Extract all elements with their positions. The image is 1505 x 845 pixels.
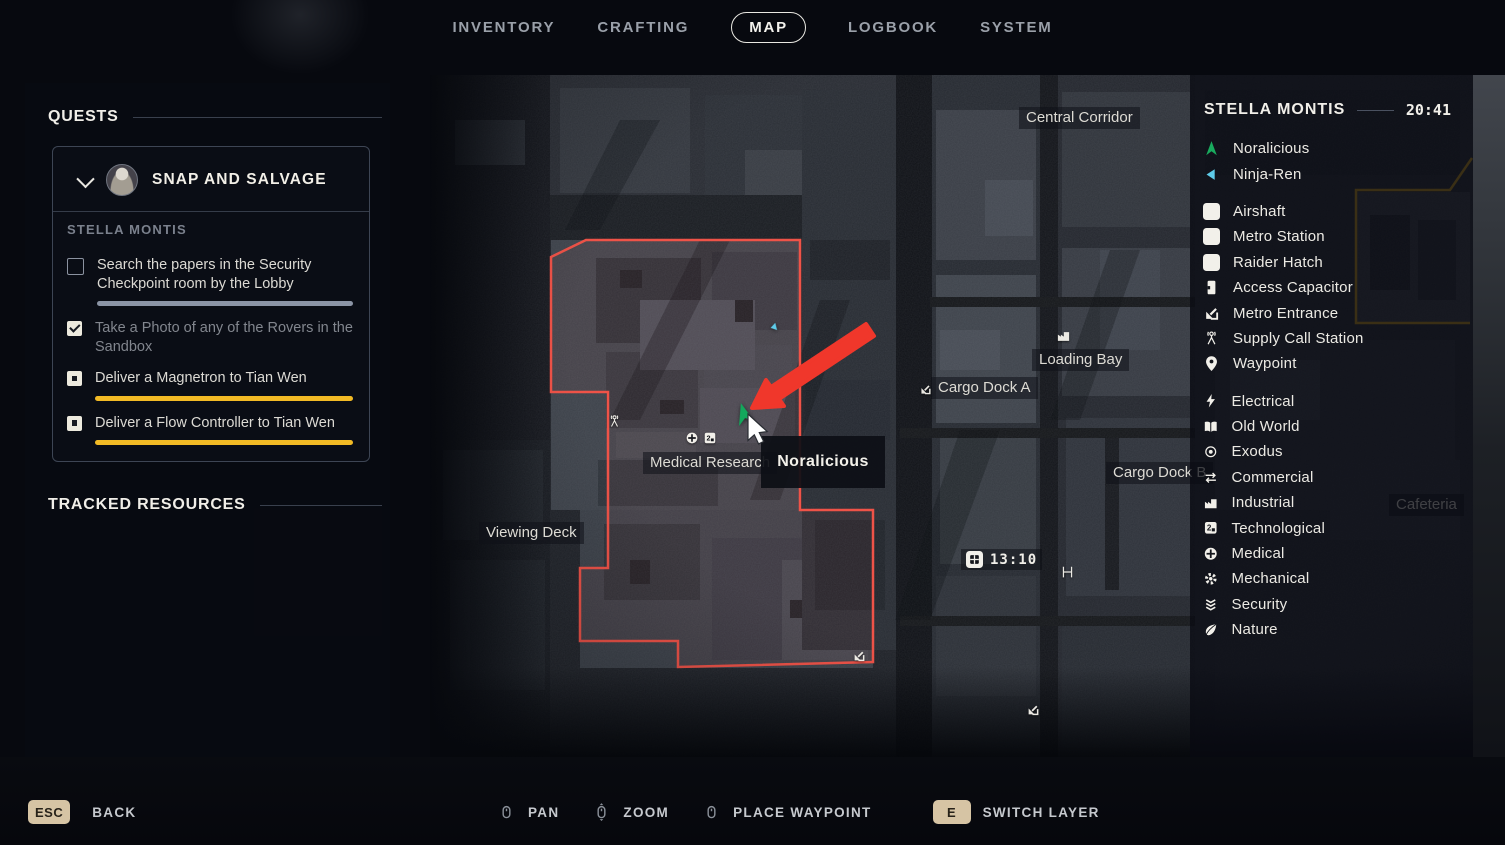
legend-item-airshaft: Airshaft xyxy=(1203,199,1473,224)
legend-item-electrical: Electrical xyxy=(1203,389,1473,414)
quest-location: STELLA MONTIS xyxy=(67,222,353,237)
main-nav: INVENTORYCRAFTINGMAPLOGBOOKSYSTEM xyxy=(0,8,1505,46)
divider xyxy=(133,117,382,118)
map-screen: Central CorridorLoading BayCargo Dock AC… xyxy=(0,0,1505,845)
hint-label: PAN xyxy=(528,805,559,820)
legend-item-supply-call-station: Supply Call Station xyxy=(1203,326,1473,351)
legend-item-label: Medical xyxy=(1232,545,1285,562)
quest-objective: Search the papers in the Security Checkp… xyxy=(67,256,353,306)
legend-item-label: Ninja-Ren xyxy=(1233,166,1302,183)
key-badge-e: E xyxy=(933,800,971,824)
legend-item-label: Supply Call Station xyxy=(1233,330,1364,347)
objective-text: Deliver a Flow Controller to Tian Wen xyxy=(95,414,353,433)
leaf-icon xyxy=(1203,622,1219,638)
legend-item-label: Metro Station xyxy=(1233,228,1325,245)
hint-zoom: ZOOM xyxy=(592,801,669,824)
legend-item-label: Waypoint xyxy=(1233,355,1297,372)
legend-item-label: Access Capacitor xyxy=(1233,279,1353,296)
medcross-icon xyxy=(1203,546,1219,562)
tri-left-icon xyxy=(1203,166,1220,183)
back-label: BACK xyxy=(92,805,136,820)
hint-pan: PAN xyxy=(497,801,559,824)
legend-item-exodus: Exodus xyxy=(1203,439,1473,464)
quests-panel: QUESTS SNAP AND SALVAGE STELLA MONTIS Se… xyxy=(25,83,390,758)
legend-item-industrial: Industrial xyxy=(1203,490,1473,515)
quest-objective: Take a Photo of any of the Rovers in the… xyxy=(67,319,353,356)
legend-item-mechanical: Mechanical xyxy=(1203,566,1473,591)
legend-item-label: Nature xyxy=(1232,621,1278,638)
book-icon xyxy=(1203,419,1219,435)
legend-header: STELLA MONTIS 20:41 xyxy=(1204,101,1451,119)
hint-switch-layer: E SWITCH LAYER xyxy=(933,800,1100,824)
legend-item-raider-hatch: Raider Hatch xyxy=(1203,250,1473,275)
legend-item-label: Exodus xyxy=(1232,443,1283,460)
divider xyxy=(1357,110,1394,111)
mouse-icon xyxy=(702,801,721,824)
quest-card: SNAP AND SALVAGE STELLA MONTIS Search th… xyxy=(52,146,370,462)
legend-item-ninja-ren: Ninja-Ren xyxy=(1203,161,1473,186)
factory-icon xyxy=(1203,495,1219,511)
legend-item-label: Commercial xyxy=(1232,469,1314,486)
tracked-resources-header: TRACKED RESOURCES xyxy=(48,496,382,514)
hint-label: PLACE WAYPOINT xyxy=(733,805,871,820)
legend-item-medical: Medical xyxy=(1203,541,1473,566)
hint-label: ZOOM xyxy=(623,805,669,820)
chevrons-icon xyxy=(1203,597,1219,613)
divider xyxy=(260,505,382,506)
quest-card-header[interactable]: SNAP AND SALVAGE xyxy=(53,147,369,211)
objective-progress-bar xyxy=(95,440,353,445)
quest-title: SNAP AND SALVAGE xyxy=(152,171,327,189)
quest-objective: Deliver a Magnetron to Tian Wen xyxy=(67,369,353,401)
objective-text: Deliver a Magnetron to Tian Wen xyxy=(95,369,353,388)
legend-group: Noralicious Ninja-Ren xyxy=(1203,136,1473,187)
legend-panel: STELLA MONTIS 20:41 Noralicious Ninja-Re… xyxy=(1190,75,1473,757)
quests-title: QUESTS xyxy=(48,108,119,126)
footer-bar: ESC BACK PAN ZOOM PLACE WAYPOINT E SWITC… xyxy=(0,757,1505,845)
legend-item-access-capacitor: Access Capacitor xyxy=(1203,275,1473,300)
legend-item-label: Noralicious xyxy=(1233,140,1309,157)
pin-icon xyxy=(1203,355,1220,372)
tab-system[interactable]: SYSTEM xyxy=(980,19,1052,36)
divider xyxy=(53,211,369,212)
legend-item-nature: Nature xyxy=(1203,617,1473,642)
legend-region-title: STELLA MONTIS xyxy=(1204,101,1345,119)
eye-icon xyxy=(1203,444,1219,460)
legend-item-label: Raider Hatch xyxy=(1233,254,1323,271)
legend-item-label: Old World xyxy=(1232,418,1300,435)
hatch-icon xyxy=(1203,254,1220,271)
tab-logbook[interactable]: LOGBOOK xyxy=(848,19,938,36)
clock: 20:41 xyxy=(1406,101,1451,119)
mouse-wheel-icon xyxy=(592,801,611,824)
quests-header: QUESTS xyxy=(48,108,382,126)
control-hints: PAN ZOOM PLACE WAYPOINT E SWITCH LAYER xyxy=(497,800,1100,824)
objective-list: Search the papers in the Security Checkp… xyxy=(53,239,369,461)
hint-label: SWITCH LAYER xyxy=(983,805,1100,820)
fan-icon xyxy=(1203,203,1220,220)
legend-item-technological: Technological xyxy=(1203,515,1473,540)
legend-item-label: Technological xyxy=(1232,520,1326,537)
corner-arrow-icon xyxy=(1203,305,1220,322)
objective-checkbox xyxy=(67,371,82,386)
tracked-resources-title: TRACKED RESOURCES xyxy=(48,496,246,514)
door-icon xyxy=(1203,279,1220,296)
legend-item-metro-entrance: Metro Entrance xyxy=(1203,300,1473,325)
legend-item-label: Industrial xyxy=(1232,494,1295,511)
exchange-icon xyxy=(1203,470,1219,486)
legend-item-metro-station: Metro Station xyxy=(1203,224,1473,249)
legend-group: Electrical Old World Exodus Commercial I… xyxy=(1203,389,1473,643)
chevron-down-icon[interactable] xyxy=(76,169,94,187)
legend-item-noralicious: Noralicious xyxy=(1203,136,1473,161)
legend-item-security: Security xyxy=(1203,592,1473,617)
legend-item-label: Security xyxy=(1232,596,1288,613)
objective-checkbox xyxy=(67,321,82,336)
back-button[interactable]: ESC BACK xyxy=(28,800,136,824)
antenna-icon xyxy=(1203,330,1220,347)
tab-inventory[interactable]: INVENTORY xyxy=(452,19,555,36)
legend-item-commercial: Commercial xyxy=(1203,465,1473,490)
chip2-icon xyxy=(1203,520,1219,536)
legend-item-label: Electrical xyxy=(1232,393,1295,410)
quest-giver-avatar xyxy=(106,164,138,196)
legend-item-label: Airshaft xyxy=(1233,203,1285,220)
grid-icon xyxy=(1203,228,1220,245)
hint-place-waypoint: PLACE WAYPOINT xyxy=(702,801,871,824)
objective-checkbox xyxy=(67,416,82,431)
esc-key-badge: ESC xyxy=(28,800,70,824)
legend-item-label: Metro Entrance xyxy=(1233,305,1338,322)
legend-item-label: Mechanical xyxy=(1232,570,1310,587)
right-edge-strip xyxy=(1473,75,1505,757)
objective-progress-bar xyxy=(95,396,353,401)
player-icon xyxy=(1203,140,1220,157)
objective-checkbox xyxy=(67,258,84,275)
quest-objective: Deliver a Flow Controller to Tian Wen xyxy=(67,414,353,446)
bolt-icon xyxy=(1203,393,1219,409)
tab-crafting[interactable]: CRAFTING xyxy=(597,19,689,36)
legend-item-waypoint: Waypoint xyxy=(1203,351,1473,376)
gear-icon xyxy=(1203,571,1219,587)
objective-text: Take a Photo of any of the Rovers in the… xyxy=(95,319,353,356)
mouse-icon xyxy=(497,801,516,824)
legend-item-old-world: Old World xyxy=(1203,414,1473,439)
objective-text: Search the papers in the Security Checkp… xyxy=(97,256,353,293)
objective-progress-bar xyxy=(97,301,353,306)
legend-items: Noralicious Ninja-Ren Airshaft Metro Sta… xyxy=(1203,136,1473,642)
legend-group: Airshaft Metro Station Raider Hatch Acce… xyxy=(1203,199,1473,377)
tab-map[interactable]: MAP xyxy=(731,12,806,43)
